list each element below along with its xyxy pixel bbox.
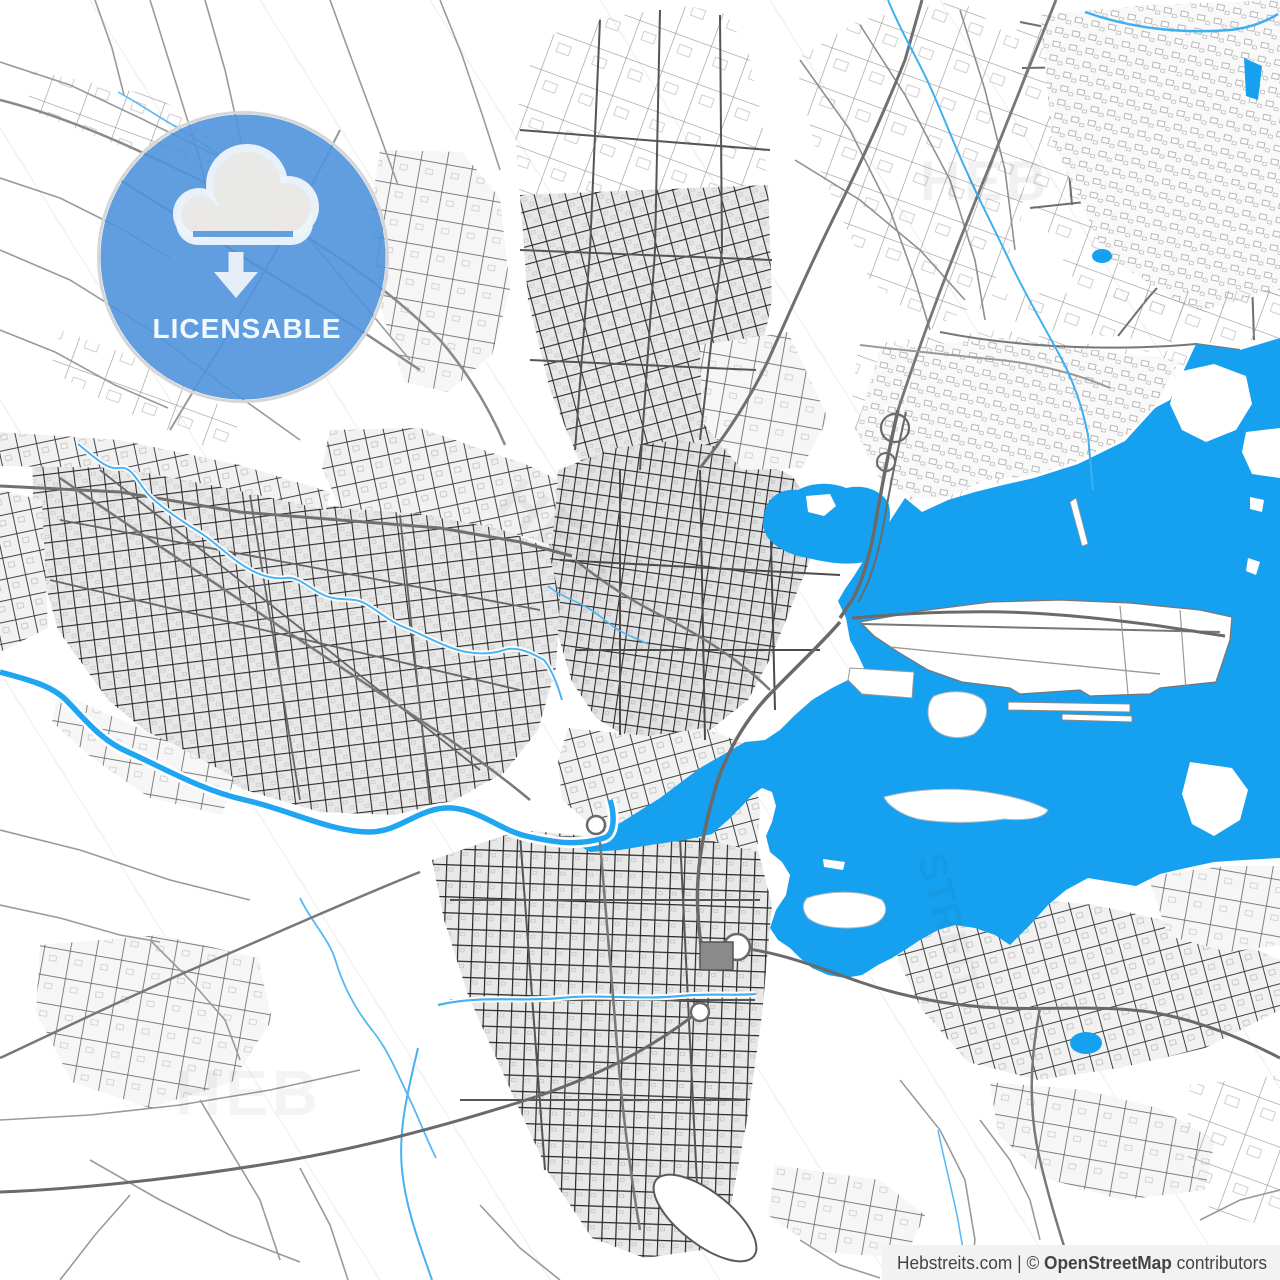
svg-text:HEB: HEB [920,149,1050,212]
svg-text:Hebstreits.com | © OpenStreetM: Hebstreits.com | © OpenStreetMap contrib… [897,1253,1267,1273]
svg-text:HEB: HEB [175,1057,322,1129]
svg-text:LICENSABLE: LICENSABLE [153,313,342,344]
